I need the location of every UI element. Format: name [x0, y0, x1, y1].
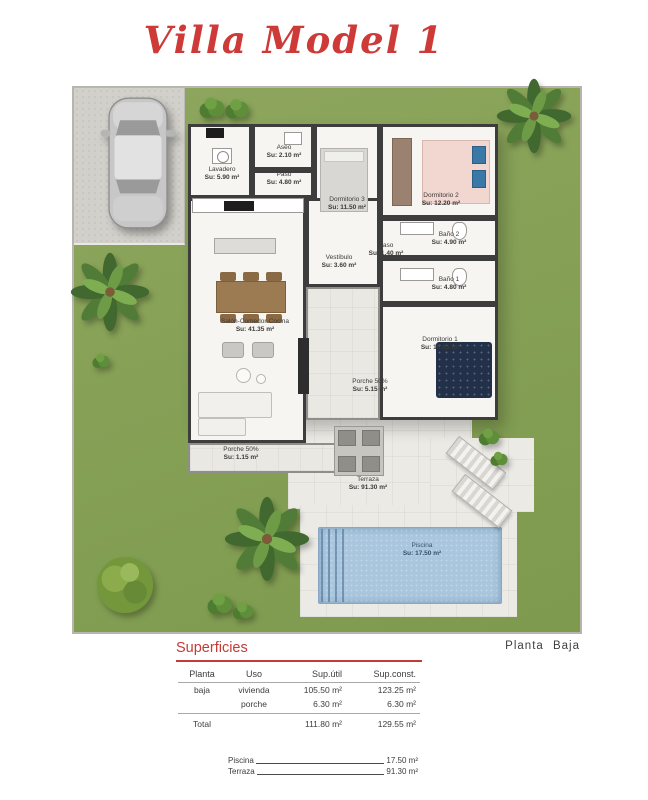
col-sup-const: Sup.const. [348, 666, 420, 683]
superficies-heading: Superficies [176, 640, 248, 656]
extra-value: 91.30 m² [386, 767, 418, 776]
page-title: Villa Model 1 [0, 18, 618, 62]
room-label-paso-2: PasoSu: 1.40 m² [362, 242, 410, 258]
cell-uso: porche [226, 697, 282, 714]
room-label-piscina: PiscinaSu: 17.50 m² [384, 542, 460, 558]
col-planta: Planta [178, 666, 226, 683]
cooktop-icon [224, 201, 254, 211]
armchair-icon [222, 342, 244, 358]
bush-icon [222, 94, 252, 124]
superficies-table: Planta Uso Sup.útil Sup.const. baja vivi… [178, 666, 420, 731]
cell-util: 6.30 m² [282, 697, 348, 714]
red-divider [176, 660, 422, 662]
cell-planta: baja [178, 683, 226, 698]
col-uso: Uso [226, 666, 282, 683]
dining-chair-icon [266, 272, 282, 281]
room-label-terraza: TerrazaSu: 91.30 m² [336, 476, 400, 492]
extra-label: Piscina [228, 756, 254, 765]
room-label-lavadero: LavaderoSu: 5.90 m² [192, 166, 252, 182]
sofa-chaise-icon [198, 418, 246, 436]
table-header-row: Planta Uso Sup.útil Sup.const. [178, 666, 420, 683]
cell-planta [178, 697, 226, 714]
bush-icon [90, 350, 112, 372]
room-label-porche-a: Porche 50%Su: 5.15 m² [342, 378, 398, 394]
wall-pillar [298, 338, 309, 394]
table-row: baja vivienda 105.50 m² 123.25 m² [178, 683, 420, 698]
dining-chair-icon [243, 272, 259, 281]
coffee-table-icon [256, 374, 266, 384]
bush-icon [488, 448, 510, 470]
palm-tree-icon [496, 78, 572, 154]
total-label: Total [178, 714, 226, 732]
room-label-aseo: AseoSu: 2.10 m² [256, 144, 312, 160]
room-label-dormitorio-1: Dormitorio 1Su: 16.95 m² [402, 336, 478, 352]
palm-tree-icon [70, 252, 150, 332]
room-label-dormitorio-2: Dormitorio 2Su: 12.20 m² [406, 192, 476, 208]
room-label-bano-2: Baño 2Su: 4.90 m² [414, 231, 484, 247]
cell-const: 6.30 m² [348, 697, 420, 714]
pillow-icon [472, 146, 486, 164]
car-icon [96, 94, 180, 232]
room-label-vestibulo: VestíbuloSu: 3.60 m² [312, 254, 366, 270]
pool-steps [321, 529, 347, 602]
table-row: porche 6.30 m² 6.30 m² [178, 697, 420, 714]
table-total-row: Total 111.80 m² 129.55 m² [178, 714, 420, 732]
sofa-icon [198, 392, 272, 418]
pillow-icon [324, 151, 364, 162]
washer-icon [212, 148, 232, 164]
cell-util: 105.50 m² [282, 683, 348, 698]
dotted-line [257, 774, 385, 775]
extras-list: Piscina 17.50 m² Terraza 91.30 m² [228, 754, 418, 776]
dining-chair-icon [220, 272, 236, 281]
list-item: Piscina 17.50 m² [228, 754, 418, 765]
entry-porch [306, 287, 380, 420]
dining-table-icon [216, 281, 286, 313]
dotted-line [256, 763, 385, 764]
plan-caption: Planta Baja [440, 640, 580, 652]
list-item: Terraza 91.30 m² [228, 765, 418, 776]
room-label-paso-1: PasoSu: 4.80 m² [256, 171, 312, 187]
kitchen-island [214, 238, 276, 254]
room-label-bano-1: Baño 1Su: 4.80 m² [414, 276, 484, 292]
bush-icon [230, 598, 256, 624]
pillow-icon [472, 170, 486, 188]
palm-tree-icon [224, 496, 310, 582]
room-label-dormitorio-3: Dormitorio 3Su: 11.50 m² [314, 196, 380, 212]
bush-icon [476, 424, 502, 450]
total-const: 129.55 m² [348, 714, 420, 732]
room-label-salon: Salón-Comedor-CocinaSu: 41.35 m² [212, 318, 298, 334]
room-label-porche-b: Porche 50%Su: 1.15 m² [212, 446, 270, 462]
page: Villa Model 1 [0, 0, 648, 800]
appliance-icon [206, 128, 224, 138]
extra-value: 17.50 m² [386, 756, 418, 765]
coffee-table-icon [236, 368, 251, 383]
col-sup-util: Sup.útil [282, 666, 348, 683]
total-util: 111.80 m² [282, 714, 348, 732]
cell-const: 123.25 m² [348, 683, 420, 698]
outdoor-dining-set [334, 426, 384, 476]
armchair-icon [252, 342, 274, 358]
cell-uso: vivienda [226, 683, 282, 698]
tree-icon [86, 546, 164, 624]
extra-label: Terraza [228, 767, 255, 776]
